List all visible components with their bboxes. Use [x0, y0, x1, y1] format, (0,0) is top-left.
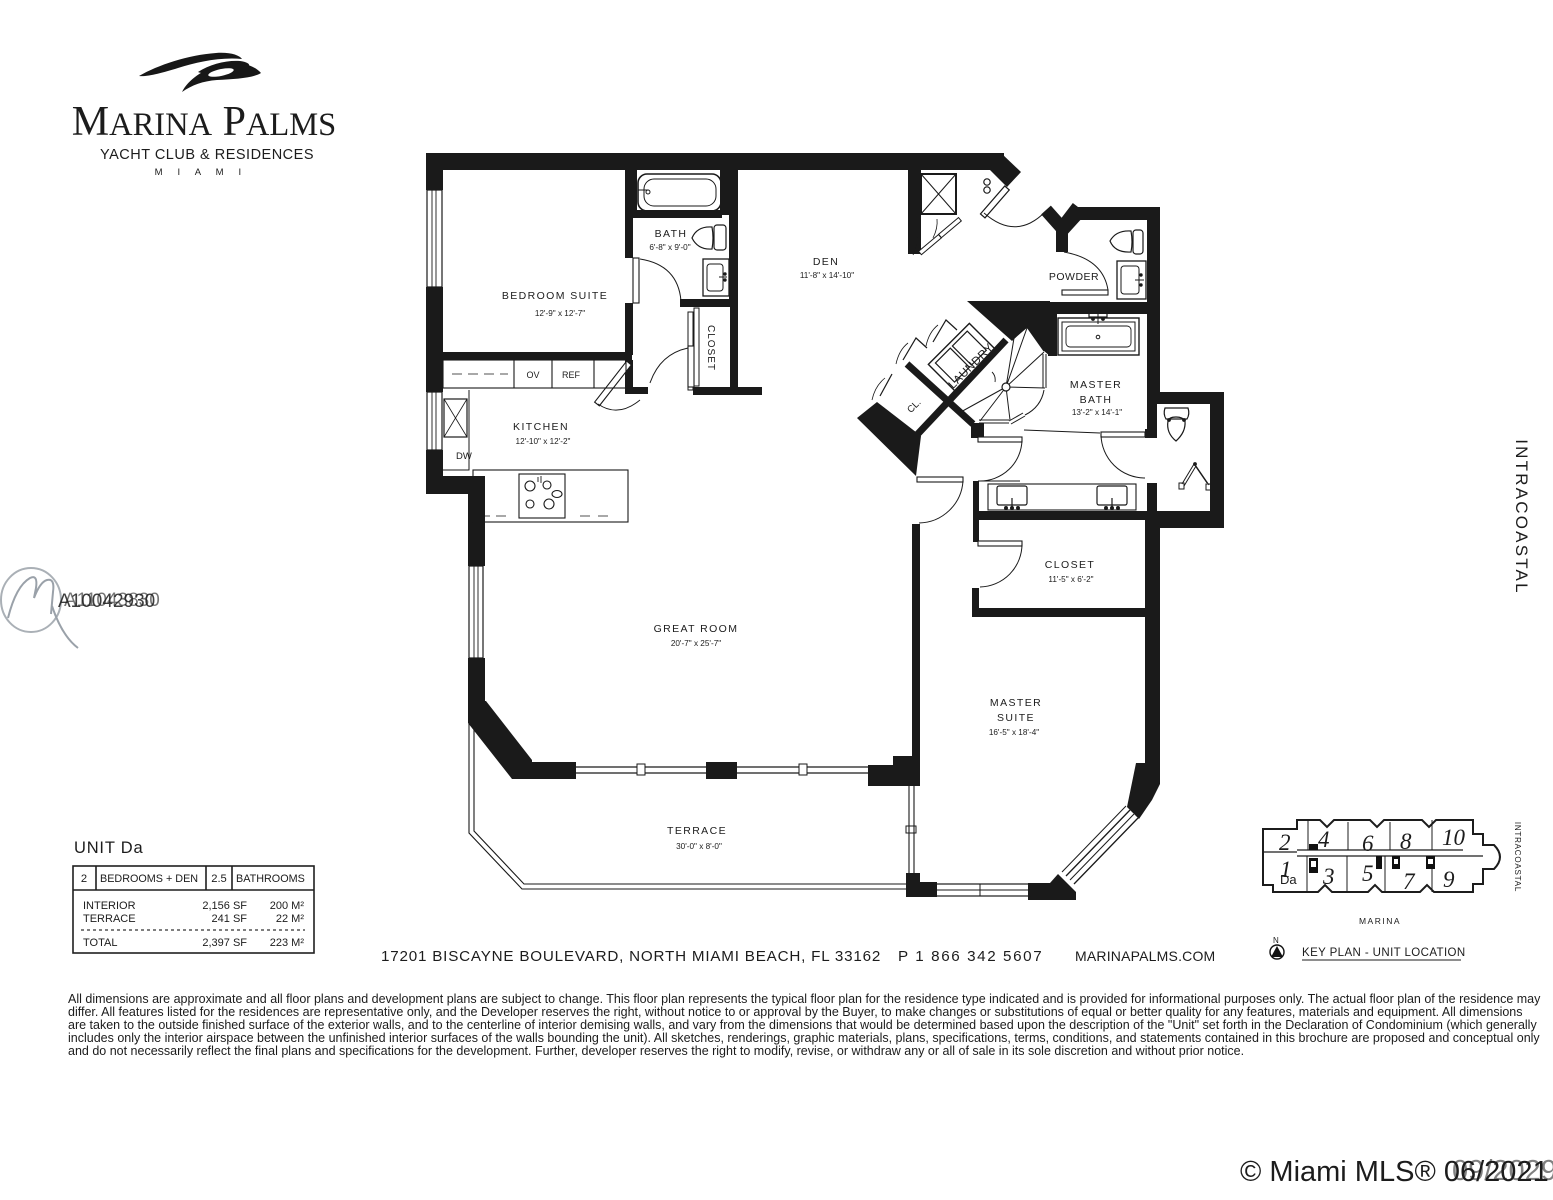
svg-text:241 SF: 241 SF	[212, 913, 248, 925]
svg-text:A11043830: A11043830	[64, 590, 160, 611]
svg-text:TERRACE: TERRACE	[667, 825, 727, 837]
svg-text:BEDROOMS + DEN: BEDROOMS + DEN	[100, 873, 198, 885]
svg-text:differ. All features listed fo: differ. All features listed for the resi…	[68, 1005, 1523, 1019]
svg-text:P 1 866 342 5607: P 1 866 342 5607	[898, 948, 1043, 965]
svg-text:12'-9" x 12'-7": 12'-9" x 12'-7"	[535, 309, 585, 318]
svg-text:All dimensions are approximate: All dimensions are approximate and all f…	[68, 992, 1541, 1006]
svg-text:MASTER: MASTER	[990, 697, 1042, 709]
svg-text:7: 7	[1403, 869, 1416, 894]
svg-text:DEN: DEN	[813, 256, 839, 268]
svg-text:22 M²: 22 M²	[276, 913, 304, 925]
svg-text:M I A M I: M I A M I	[155, 167, 248, 178]
svg-text:TERRACE: TERRACE	[83, 913, 136, 925]
svg-text:2: 2	[1279, 830, 1291, 855]
svg-text:N: N	[1273, 936, 1279, 945]
svg-text:200 M²: 200 M²	[270, 900, 305, 912]
svg-text:20'-7" x 25'-7": 20'-7" x 25'-7"	[671, 639, 721, 648]
svg-text:6: 6	[1362, 831, 1374, 856]
svg-text:INTRACOASTAL: INTRACOASTAL	[1513, 822, 1522, 892]
svg-text:2.5: 2.5	[211, 873, 227, 885]
svg-text:CLOSET: CLOSET	[705, 325, 716, 371]
svg-text:11'-5" x 6'-2": 11'-5" x 6'-2"	[1048, 575, 1093, 584]
svg-text:REF: REF	[562, 370, 581, 380]
svg-text:11'-8" x 14'-10": 11'-8" x 14'-10"	[800, 271, 854, 280]
svg-text:MARINA: MARINA	[1359, 916, 1401, 926]
svg-text:CLOSET: CLOSET	[1045, 559, 1095, 571]
svg-text:includes only the interior air: includes only the interior airspace betw…	[68, 1031, 1540, 1045]
svg-text:2,397 SF: 2,397 SF	[202, 937, 247, 949]
svg-text:16'-5" x 18'-4": 16'-5" x 18'-4"	[989, 728, 1039, 737]
svg-text:5: 5	[1362, 861, 1374, 886]
svg-text:and do not necessarily reflect: and do not necessarily reflect the final…	[68, 1044, 1244, 1058]
svg-text:BATHROOMS: BATHROOMS	[236, 873, 305, 885]
svg-text:SUITE: SUITE	[997, 712, 1035, 724]
svg-text:223 M²: 223 M²	[270, 937, 305, 949]
svg-text:MARINAPALMS.COM: MARINAPALMS.COM	[1075, 948, 1215, 964]
svg-text:9: 9	[1443, 867, 1455, 892]
svg-text:12'-10" x 12'-2": 12'-10" x 12'-2"	[516, 437, 571, 446]
svg-text:YACHT CLUB & RESIDENCES: YACHT CLUB & RESIDENCES	[100, 147, 314, 163]
svg-text:8: 8	[1400, 829, 1412, 854]
svg-text:OV: OV	[526, 370, 539, 380]
svg-text:BATH: BATH	[1080, 394, 1113, 406]
svg-text:KEY PLAN - UNIT LOCATION: KEY PLAN - UNIT LOCATION	[1302, 947, 1466, 959]
svg-text:INTRACOASTAL: INTRACOASTAL	[1512, 439, 1531, 595]
svg-text:10: 10	[1442, 825, 1466, 850]
svg-text:13'-2" x 14'-1": 13'-2" x 14'-1"	[1072, 408, 1122, 417]
svg-text:2: 2	[81, 873, 87, 885]
svg-text:KITCHEN: KITCHEN	[513, 421, 569, 433]
svg-text:INTERIOR: INTERIOR	[83, 900, 136, 912]
svg-text:TOTAL: TOTAL	[83, 937, 117, 949]
svg-text:3: 3	[1322, 864, 1335, 889]
svg-text:DW: DW	[456, 451, 472, 462]
svg-text:2,156 SF: 2,156 SF	[202, 900, 247, 912]
svg-text:UNIT Da: UNIT Da	[74, 839, 143, 857]
svg-text:Da: Da	[1280, 872, 1297, 887]
svg-text:4: 4	[1318, 827, 1330, 852]
svg-text:6'-8" x 9'-0": 6'-8" x 9'-0"	[649, 243, 690, 252]
svg-text:09/2029: 09/2029	[1452, 1155, 1553, 1187]
svg-text:are taken to the outside finis: are taken to the outside finished surfac…	[68, 1018, 1537, 1032]
svg-text:GREAT ROOM: GREAT ROOM	[654, 623, 739, 635]
svg-text:30'-0" x 8'-0": 30'-0" x 8'-0"	[676, 842, 722, 851]
svg-text:BEDROOM SUITE: BEDROOM SUITE	[502, 290, 608, 302]
svg-text:MASTER: MASTER	[1070, 379, 1122, 391]
svg-text:17201 BISCAYNE BOULEVARD, NORT: 17201 BISCAYNE BOULEVARD, NORTH MIAMI BE…	[381, 948, 881, 965]
svg-text:POWDER: POWDER	[1049, 271, 1099, 283]
svg-text:BATH: BATH	[655, 228, 688, 240]
